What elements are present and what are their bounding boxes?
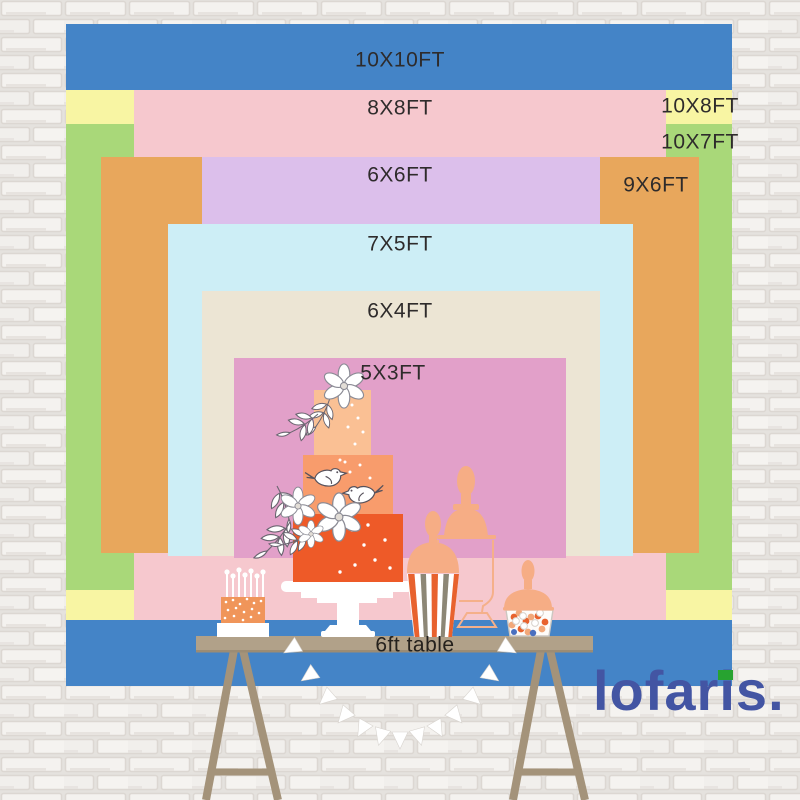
- tiered-cake: [248, 364, 403, 582]
- brand-logo: lofaris.: [593, 663, 785, 719]
- table-size-label: 6ft table: [375, 635, 454, 656]
- size-label-6x4: 6X4FT: [367, 301, 433, 322]
- brand-text-lofar: lofar: [593, 659, 719, 722]
- brand-period: .: [768, 659, 785, 722]
- brand-letter-i-text: i: [719, 659, 736, 722]
- size-label-10x7: 10X7FT: [661, 132, 739, 153]
- cake-pops: [217, 567, 269, 637]
- table-leg-left: [206, 650, 278, 800]
- size-label-7x5: 7X5FT: [367, 234, 433, 255]
- backdrop-size-chart: 10X10FT 8X8FT 10X8FT 10X7FT 6X6FT 9X6FT …: [0, 0, 800, 800]
- size-label-5x3: 5X3FT: [360, 363, 426, 384]
- brand-letter-i: i: [719, 663, 736, 719]
- size-label-10x8: 10X8FT: [661, 96, 739, 117]
- candy-jar: [503, 560, 554, 636]
- size-label-9x6: 9X6FT: [623, 175, 689, 196]
- size-label-10x10: 10X10FT: [355, 50, 445, 71]
- brand-green-accent-icon: [718, 670, 733, 680]
- table-leg-right: [513, 650, 585, 800]
- size-label-8x8: 8X8FT: [367, 98, 433, 119]
- brand-text-s: s: [736, 659, 768, 722]
- cake-stand: [281, 581, 413, 637]
- size-label-6x6: 6X6FT: [367, 165, 433, 186]
